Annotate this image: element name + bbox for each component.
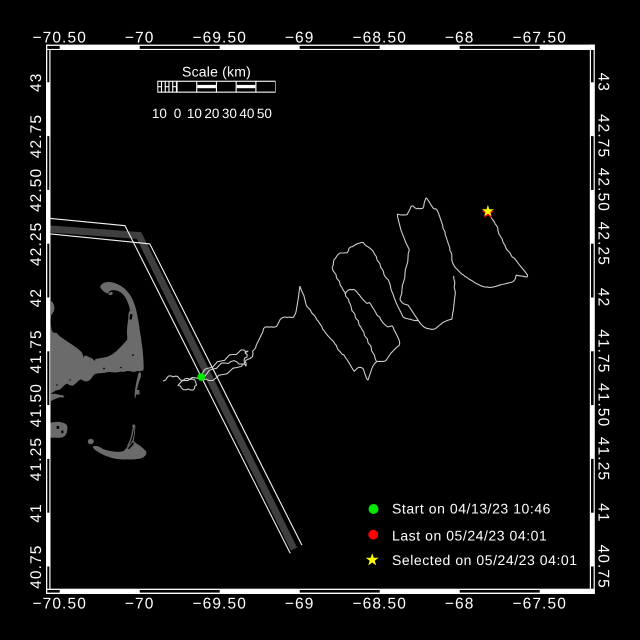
svg-text:Scale (km): Scale (km) — [182, 63, 251, 79]
svg-text:41.50: 41.50 — [594, 383, 611, 427]
svg-text:50: 50 — [257, 106, 272, 121]
svg-text:−70.50: −70.50 — [32, 596, 86, 613]
svg-text:41.75: 41.75 — [28, 329, 45, 373]
svg-text:41.25: 41.25 — [28, 437, 45, 481]
svg-text:−70.50: −70.50 — [32, 30, 86, 47]
svg-text:40.75: 40.75 — [28, 545, 45, 589]
svg-text:−69.50: −69.50 — [192, 30, 246, 47]
svg-text:42: 42 — [28, 288, 45, 307]
svg-text:20: 20 — [204, 106, 219, 121]
svg-text:42.25: 42.25 — [28, 222, 45, 266]
svg-text:42.75: 42.75 — [594, 114, 611, 158]
svg-text:−69: −69 — [285, 30, 315, 47]
svg-text:−68.50: −68.50 — [352, 596, 406, 613]
svg-text:43: 43 — [594, 73, 611, 92]
svg-text:−68: −68 — [445, 30, 475, 47]
svg-text:42: 42 — [594, 288, 611, 307]
svg-text:40: 40 — [239, 106, 254, 121]
svg-text:−67.50: −67.50 — [512, 596, 566, 613]
svg-text:43: 43 — [28, 73, 45, 92]
svg-text:Start on 04/13/23 10:46: Start on 04/13/23 10:46 — [392, 501, 551, 517]
svg-text:41: 41 — [594, 503, 611, 522]
svg-text:10: 10 — [187, 106, 202, 121]
svg-text:41: 41 — [28, 503, 45, 522]
svg-text:−69: −69 — [285, 596, 315, 613]
svg-text:Selected on 05/24/23 04:01: Selected on 05/24/23 04:01 — [392, 552, 578, 568]
svg-text:0: 0 — [174, 106, 182, 121]
svg-text:10: 10 — [152, 106, 167, 121]
svg-text:−68.50: −68.50 — [352, 30, 406, 47]
svg-text:40.75: 40.75 — [594, 545, 611, 589]
svg-text:42.75: 42.75 — [28, 114, 45, 158]
svg-text:−70: −70 — [125, 596, 155, 613]
svg-text:41.25: 41.25 — [594, 437, 611, 481]
svg-text:41.75: 41.75 — [594, 329, 611, 373]
svg-text:41.50: 41.50 — [28, 383, 45, 427]
svg-text:30: 30 — [222, 106, 237, 121]
svg-text:−67.50: −67.50 — [512, 30, 566, 47]
svg-text:−68: −68 — [445, 596, 475, 613]
svg-text:42.50: 42.50 — [28, 168, 45, 212]
svg-text:42.50: 42.50 — [594, 168, 611, 212]
svg-text:Last on 05/24/23 04:01: Last on 05/24/23 04:01 — [392, 527, 547, 543]
svg-text:−69.50: −69.50 — [192, 596, 246, 613]
svg-text:−70: −70 — [125, 30, 155, 47]
svg-text:42.25: 42.25 — [594, 222, 611, 266]
